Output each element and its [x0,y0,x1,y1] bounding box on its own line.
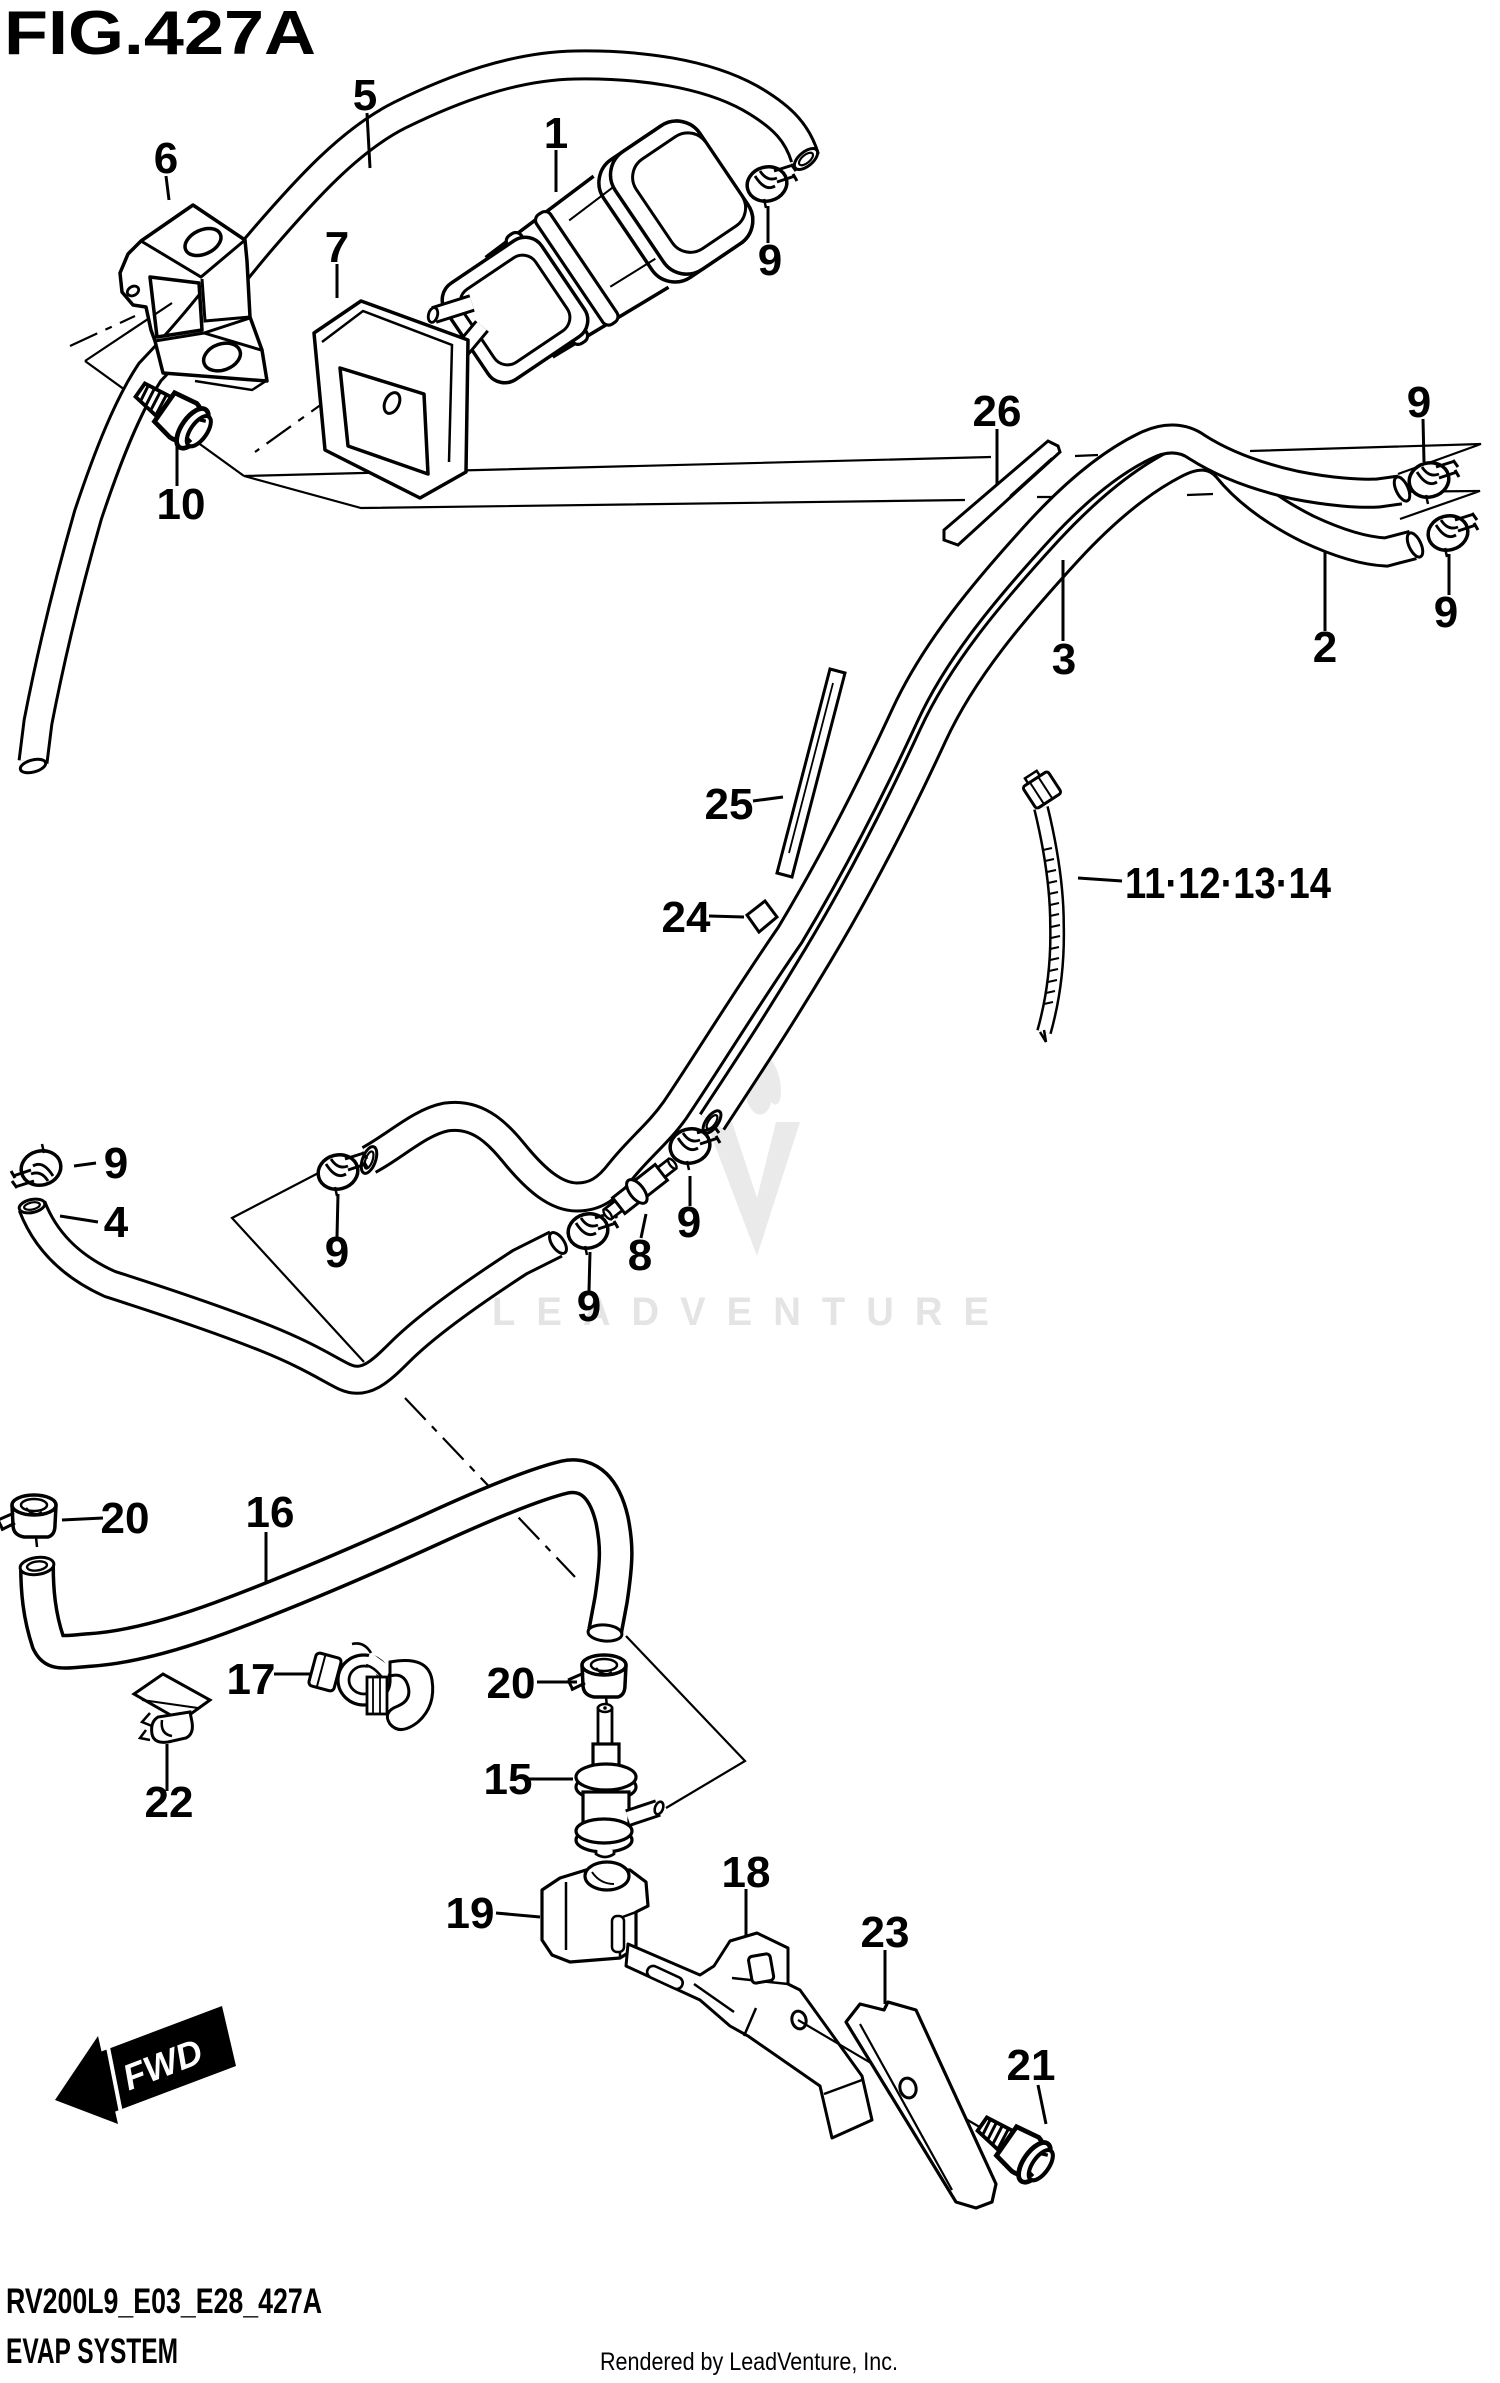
svg-text:24: 24 [662,893,711,942]
svg-text:20: 20 [101,1494,150,1543]
svg-text:6: 6 [154,134,178,183]
svg-text:5: 5 [353,71,377,120]
svg-text:26: 26 [973,387,1022,436]
svg-text:16: 16 [246,1488,295,1537]
svg-text:19: 19 [446,1889,495,1938]
svg-text:23: 23 [861,1908,910,1957]
svg-text:9: 9 [1407,378,1431,427]
svg-text:Rendered by LeadVenture, Inc.: Rendered by LeadVenture, Inc. [600,2348,898,2376]
svg-text:RV200L9_E03_E28_427A: RV200L9_E03_E28_427A [6,2282,322,2321]
svg-text:20: 20 [487,1659,536,1708]
svg-text:25: 25 [705,780,754,829]
svg-text:17: 17 [227,1655,276,1704]
svg-text:15: 15 [484,1755,533,1804]
svg-text:FIG.427A: FIG.427A [4,0,316,68]
svg-text:21: 21 [1007,2041,1056,2090]
svg-text:3: 3 [1052,635,1076,684]
svg-text:22: 22 [145,1778,194,1827]
svg-text:11·12·13·14: 11·12·13·14 [1125,859,1331,908]
svg-text:9: 9 [104,1139,128,1188]
svg-text:EVAP SYSTEM: EVAP SYSTEM [6,2332,178,2371]
svg-text:LEADVENTURE: LEADVENTURE [492,1290,1010,1334]
svg-text:9: 9 [758,236,782,285]
svg-text:4: 4 [104,1198,129,1247]
svg-text:8: 8 [628,1231,652,1280]
svg-text:9: 9 [1434,588,1458,637]
svg-text:10: 10 [157,480,206,529]
